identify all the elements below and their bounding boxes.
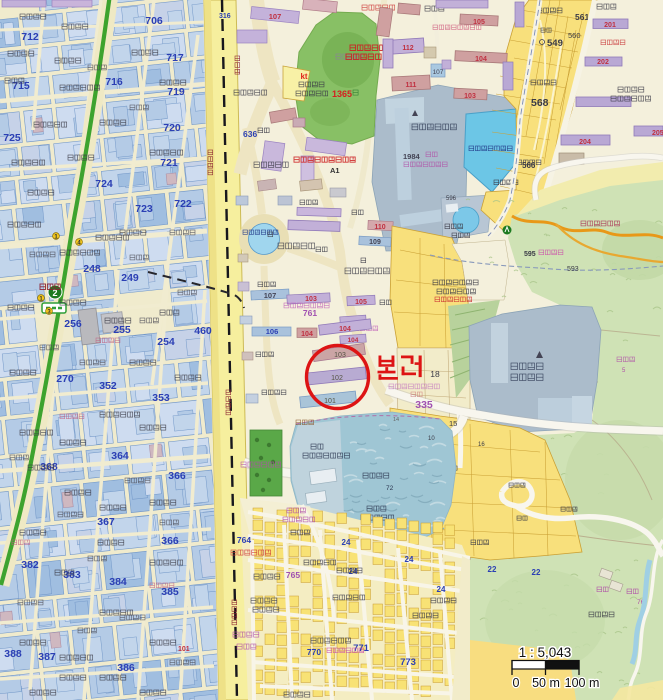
svg-text:721: 721 [160,157,178,169]
svg-text:201: 201 [604,22,616,29]
svg-text:104: 104 [475,56,487,63]
svg-text:107: 107 [433,69,444,76]
svg-text:596: 596 [446,196,457,202]
svg-text:719: 719 [167,86,185,98]
svg-text:50 m: 50 m [532,676,560,690]
svg-text:382: 382 [21,559,39,571]
svg-text:1 : 5,043: 1 : 5,043 [519,645,572,660]
svg-text:368: 368 [40,461,58,473]
svg-text:384: 384 [109,576,127,588]
svg-text:595: 595 [524,251,536,258]
svg-text:254: 254 [157,336,175,348]
svg-text:14: 14 [393,417,399,423]
svg-text:A1: A1 [330,166,340,175]
svg-text:255: 255 [113,324,131,336]
svg-text:0: 0 [513,676,520,690]
svg-text:761: 761 [303,308,317,318]
svg-text:316: 316 [219,13,231,20]
svg-text:712: 712 [21,31,39,43]
svg-text:335: 335 [415,399,433,411]
svg-text:103: 103 [305,296,317,303]
svg-text:636: 636 [243,129,257,139]
svg-text:706: 706 [145,15,163,27]
svg-text:107: 107 [264,291,277,300]
svg-text:1365: 1365 [332,89,352,99]
svg-text:204: 204 [579,139,591,146]
svg-text:364: 364 [111,450,129,462]
svg-text:22: 22 [488,565,497,574]
svg-text:109: 109 [369,239,381,246]
svg-text:723: 723 [135,203,153,215]
svg-text:725: 725 [3,132,21,144]
svg-text:18: 18 [430,369,440,379]
svg-text:387: 387 [38,651,56,663]
svg-text:104: 104 [348,337,359,344]
svg-text:764: 764 [237,535,251,545]
svg-text:560: 560 [568,31,581,40]
svg-text:770: 770 [307,647,321,657]
svg-text:110: 110 [374,224,385,231]
svg-text:367: 367 [97,516,115,528]
svg-text:22: 22 [532,568,541,577]
svg-text:24: 24 [342,538,351,547]
svg-text:16: 16 [478,442,485,448]
svg-text:205: 205 [652,130,663,137]
svg-text:366: 366 [161,535,179,547]
svg-text:107: 107 [269,12,282,21]
svg-text:24: 24 [437,585,446,594]
svg-text:202: 202 [597,59,609,66]
svg-text:72: 72 [386,485,394,492]
svg-text:106: 106 [266,327,279,336]
svg-text:112: 112 [402,45,413,52]
svg-text:kt: kt [300,72,307,81]
svg-text:248: 248 [83,263,101,275]
svg-text:561: 561 [575,12,589,22]
svg-text:353: 353 [152,392,170,404]
svg-text:386: 386 [117,662,135,674]
svg-text:10: 10 [428,436,435,442]
svg-text:722: 722 [174,198,192,210]
svg-text:724: 724 [95,178,113,190]
svg-text:103: 103 [464,93,476,100]
svg-text:270: 270 [56,373,74,385]
svg-text:460: 460 [194,325,212,337]
svg-text:249: 249 [121,272,139,284]
svg-text:100 m: 100 m [565,676,600,690]
svg-text:111: 111 [406,82,417,89]
svg-text:104: 104 [301,331,313,338]
svg-text:352: 352 [99,380,117,392]
svg-text:256: 256 [64,318,82,330]
svg-text:566: 566 [522,161,536,170]
svg-text:101: 101 [324,398,336,405]
svg-text:366: 366 [168,470,186,482]
svg-text:1984: 1984 [403,152,421,161]
svg-text:549: 549 [547,38,563,49]
svg-text:720: 720 [163,122,181,134]
svg-text:101: 101 [178,646,190,653]
svg-text:24: 24 [405,555,414,564]
svg-text:104: 104 [339,326,351,333]
svg-text:717: 717 [166,52,184,64]
svg-text:593: 593 [567,266,579,273]
svg-text:773: 773 [400,657,416,668]
svg-text:568: 568 [531,97,549,109]
svg-text:105: 105 [355,299,367,306]
svg-text:716: 716 [105,76,123,88]
svg-text:765: 765 [286,570,300,580]
svg-text:388: 388 [4,648,22,660]
svg-text:102: 102 [331,375,343,382]
svg-text:15: 15 [449,419,457,428]
svg-text:103: 103 [334,352,346,359]
svg-text:771: 771 [353,643,370,654]
